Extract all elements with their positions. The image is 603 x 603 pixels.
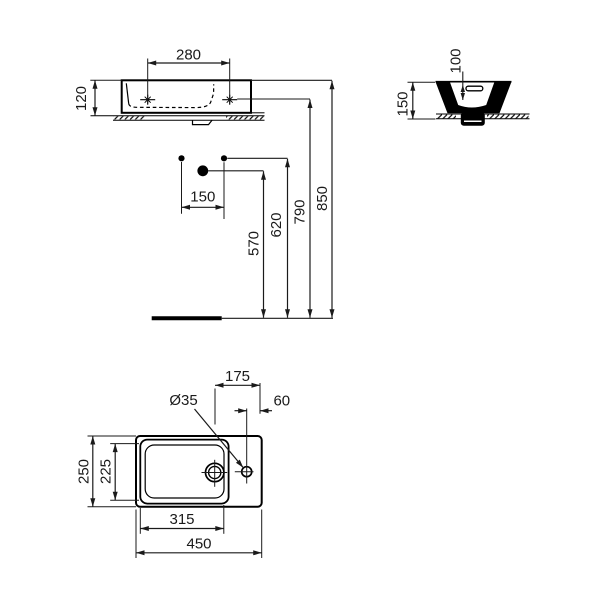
bowl-outline (140, 440, 228, 504)
waste-outlet-dot (197, 165, 208, 176)
dimension-450: 450 (136, 510, 262, 559)
wall-hatch-left (113, 116, 145, 120)
waste-fitting-front (193, 120, 213, 124)
wall-mount-strip-front (91, 113, 265, 125)
basin-technical-drawing: 280 120 570 620 790 850 150 (0, 0, 603, 603)
dim-label-150-fixing: 150 (190, 189, 215, 206)
dim-label-450: 450 (186, 535, 211, 552)
basin-inner-wall-line (126, 83, 128, 103)
dimension-150-side: 150 (394, 82, 435, 119)
side-view: 100 150 (394, 48, 529, 125)
wall-hatch-right (226, 116, 264, 120)
dim-label-150-side: 150 (394, 91, 411, 116)
dim-label-175: 175 (225, 368, 250, 385)
dim-label-100: 100 (447, 48, 464, 73)
dimension-60: 60 (235, 393, 291, 411)
dim-label-225: 225 (98, 459, 115, 484)
side-hatch-right (487, 114, 529, 118)
front-view: 280 120 (73, 47, 265, 125)
dim-label-620: 620 (268, 212, 285, 237)
dimension-225: 225 (98, 444, 139, 501)
dimension-315: 315 (140, 505, 224, 534)
dim-label-315: 315 (169, 511, 194, 528)
dimension-120: 120 (73, 80, 122, 115)
technical-drawing-page: 280 120 570 620 790 850 150 (0, 0, 603, 603)
dimension-280: 280 (148, 47, 230, 104)
dim-label-60: 60 (273, 393, 290, 410)
dim-label-850: 850 (314, 186, 331, 211)
overflow-slot (466, 86, 483, 91)
dim-label-d35: Ø35 (169, 392, 197, 409)
dim-label-250: 250 (75, 459, 92, 484)
dimension-175: 175 (215, 368, 260, 425)
dim-label-570: 570 (246, 231, 263, 256)
bowl-inner-edge (145, 445, 224, 498)
dim-label-120: 120 (73, 86, 90, 111)
side-hatch-left (437, 114, 456, 118)
tap-hole-plan (235, 409, 254, 484)
fixing-dot-left (178, 155, 184, 161)
dim-label-790: 790 (292, 199, 309, 224)
taphole-diameter-callout: Ø35 (169, 392, 243, 468)
basin-hidden-contour (129, 84, 214, 107)
arrow-down-100 (461, 93, 465, 100)
dim-label-280: 280 (176, 47, 201, 64)
waste-fitting-side (461, 112, 485, 126)
waste-outlet-plan (202, 460, 228, 487)
fixing-dot-right (221, 155, 227, 161)
plan-view: Ø35 175 60 250 225 (75, 368, 290, 558)
arrow-up-100 (461, 85, 465, 92)
